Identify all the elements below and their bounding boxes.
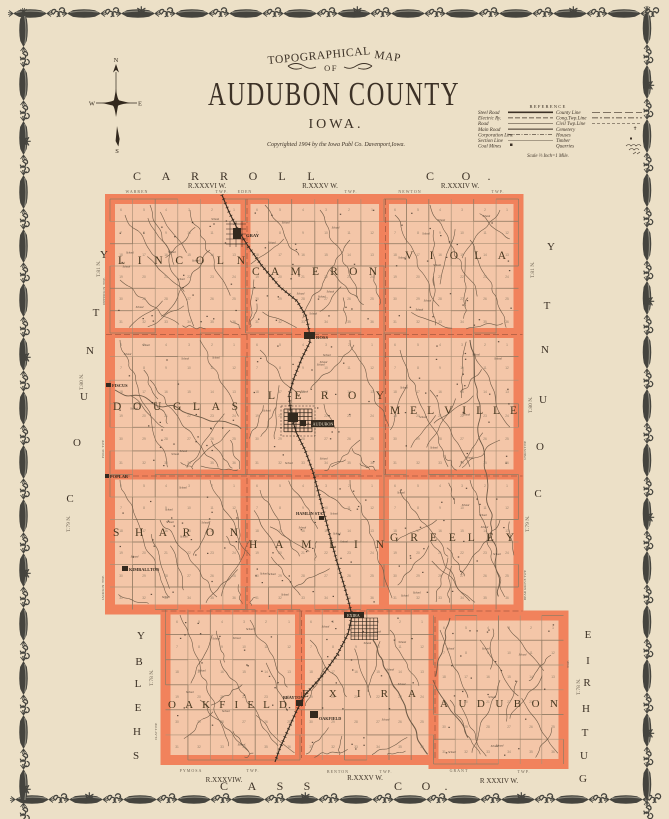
svg-text:31: 31 — [255, 320, 259, 324]
svg-text:15: 15 — [187, 390, 191, 394]
svg-text:OF: OF — [324, 63, 338, 73]
svg-text:6: 6 — [394, 484, 396, 488]
svg-text:School: School — [493, 553, 501, 556]
svg-text:2: 2 — [211, 208, 213, 212]
svg-text:27: 27 — [324, 574, 328, 578]
svg-text:34: 34 — [507, 750, 511, 754]
svg-text:9: 9 — [302, 366, 304, 370]
svg-text:Copyrighted 1904 by the Iowa P: Copyrighted 1904 by the Iowa Publ Co. Da… — [267, 141, 405, 148]
svg-text:6: 6 — [256, 484, 258, 488]
svg-text:School: School — [479, 514, 487, 517]
svg-text:29: 29 — [464, 725, 468, 729]
svg-text:29: 29 — [416, 574, 420, 578]
svg-text:28: 28 — [486, 725, 490, 729]
svg-text:Cemetery: Cemetery — [556, 128, 576, 133]
svg-text:12: 12 — [232, 506, 236, 510]
svg-text:O: O — [536, 441, 544, 453]
svg-text:Civil Twp.Line: Civil Twp.Line — [556, 122, 586, 127]
svg-text:13: 13 — [551, 675, 555, 679]
svg-text:4: 4 — [165, 208, 167, 212]
svg-text:2: 2 — [484, 343, 486, 347]
svg-text:10: 10 — [460, 506, 464, 510]
svg-text:35: 35 — [483, 320, 487, 324]
svg-text:11: 11 — [398, 645, 402, 649]
svg-text:Electric Ry.: Electric Ry. — [477, 117, 501, 122]
svg-text:5: 5 — [279, 208, 281, 212]
svg-text:24: 24 — [505, 275, 509, 279]
svg-text:HAMLIN STA.: HAMLIN STA. — [296, 511, 324, 516]
svg-text:I: I — [586, 655, 590, 667]
svg-text:O: O — [73, 437, 81, 449]
svg-text:20: 20 — [142, 275, 146, 279]
svg-text:School: School — [268, 242, 276, 245]
svg-text:C: C — [133, 169, 141, 183]
svg-text:27: 27 — [324, 437, 328, 441]
svg-text:School: School — [401, 595, 409, 598]
svg-text:Y: Y — [137, 630, 145, 642]
svg-text:14: 14 — [347, 253, 351, 257]
svg-text:21: 21 — [164, 414, 168, 418]
svg-text:32: 32 — [464, 750, 468, 754]
svg-text:PYMOSA: PYMOSA — [180, 768, 203, 773]
svg-text:24: 24 — [232, 275, 236, 279]
svg-text:3: 3 — [325, 208, 327, 212]
svg-text:14: 14 — [398, 670, 402, 674]
svg-text:35: 35 — [483, 596, 487, 600]
svg-text:27: 27 — [376, 720, 380, 724]
svg-text:Quarries: Quarries — [556, 145, 574, 150]
svg-text:1: 1 — [371, 208, 373, 212]
svg-text:25: 25 — [505, 297, 509, 301]
svg-text:9: 9 — [165, 506, 167, 510]
svg-text:T: T — [544, 300, 551, 312]
svg-text:30: 30 — [393, 574, 397, 578]
svg-text:18: 18 — [119, 390, 123, 394]
svg-text:5: 5 — [417, 208, 419, 212]
svg-text:30: 30 — [255, 297, 259, 301]
svg-text:36: 36 — [420, 745, 424, 749]
svg-text:16: 16 — [301, 253, 305, 257]
svg-text:15: 15 — [507, 675, 511, 679]
svg-text:33: 33 — [438, 461, 442, 465]
svg-text:10: 10 — [460, 231, 464, 235]
svg-text:12: 12 — [551, 651, 555, 655]
svg-text:8: 8 — [417, 506, 419, 510]
svg-text:School: School — [285, 462, 293, 465]
svg-text:36: 36 — [232, 596, 236, 600]
svg-text:1: 1 — [506, 484, 508, 488]
svg-text:T.80 N.: T.80 N. — [528, 396, 534, 413]
svg-text:T.78 N.: T.78 N. — [149, 669, 155, 686]
svg-text:34: 34 — [324, 461, 328, 465]
svg-text:35: 35 — [210, 596, 214, 600]
svg-text:School: School — [413, 592, 421, 595]
svg-text:School: School — [430, 446, 438, 449]
svg-text:A: A — [248, 779, 257, 793]
svg-text:26: 26 — [483, 574, 487, 578]
svg-text:C: C — [426, 169, 434, 183]
svg-text:9: 9 — [302, 231, 304, 235]
svg-text:23: 23 — [483, 551, 487, 555]
svg-text:6: 6 — [394, 343, 396, 347]
svg-text:School: School — [416, 308, 424, 311]
svg-text:22: 22 — [324, 551, 328, 555]
svg-text:School: School — [330, 513, 338, 516]
svg-text:16: 16 — [301, 390, 305, 394]
svg-text:36: 36 — [232, 320, 236, 324]
svg-text:10: 10 — [187, 366, 191, 370]
svg-text:11: 11 — [483, 231, 487, 235]
svg-text:30: 30 — [119, 437, 123, 441]
svg-text:32: 32 — [142, 596, 146, 600]
svg-text:32: 32 — [142, 320, 146, 324]
svg-text:School: School — [260, 573, 268, 576]
svg-text:3: 3 — [325, 343, 327, 347]
svg-text:1: 1 — [371, 484, 373, 488]
svg-text:School: School — [483, 215, 491, 218]
svg-text:29: 29 — [197, 720, 201, 724]
svg-text:E X I R A: E X I R A — [302, 688, 416, 700]
svg-text:32: 32 — [197, 745, 201, 749]
svg-text:U: U — [580, 750, 588, 762]
svg-text:26: 26 — [483, 437, 487, 441]
svg-text:32: 32 — [331, 745, 335, 749]
svg-text:6: 6 — [256, 208, 258, 212]
svg-text:25: 25 — [551, 725, 555, 729]
svg-text:34: 34 — [324, 596, 328, 600]
svg-text:13: 13 — [370, 253, 374, 257]
svg-text:26: 26 — [483, 297, 487, 301]
svg-text:4: 4 — [439, 208, 441, 212]
svg-text:32: 32 — [416, 320, 420, 324]
svg-text:JEFFERSON TWP.: JEFFERSON TWP. — [102, 277, 106, 305]
svg-text:21: 21 — [438, 551, 442, 555]
svg-text:1: 1 — [552, 626, 554, 630]
svg-text:O: O — [249, 169, 258, 183]
svg-text:28: 28 — [164, 297, 168, 301]
svg-text:34: 34 — [187, 461, 191, 465]
svg-text:School: School — [124, 353, 132, 356]
svg-text:School: School — [448, 751, 456, 754]
svg-text:20: 20 — [278, 414, 282, 418]
svg-text:6: 6 — [120, 208, 122, 212]
svg-text:7: 7 — [310, 645, 312, 649]
svg-text:14: 14 — [483, 253, 487, 257]
svg-text:5: 5 — [417, 343, 419, 347]
svg-text:18: 18 — [393, 253, 397, 257]
svg-text:1: 1 — [233, 208, 235, 212]
svg-text:School: School — [438, 219, 446, 222]
svg-text:32: 32 — [278, 461, 282, 465]
svg-text:18: 18 — [255, 390, 259, 394]
svg-text:8: 8 — [143, 366, 145, 370]
svg-text:36: 36 — [287, 745, 291, 749]
svg-text:10: 10 — [187, 231, 191, 235]
svg-text:36: 36 — [505, 461, 509, 465]
svg-text:4: 4 — [439, 343, 441, 347]
svg-text:22: 22 — [187, 414, 191, 418]
svg-text:8: 8 — [279, 231, 281, 235]
svg-text:EDEN: EDEN — [238, 189, 253, 194]
svg-text:FISCUS: FISCUS — [112, 383, 128, 388]
svg-text:12: 12 — [505, 366, 509, 370]
svg-text:10: 10 — [507, 651, 511, 655]
svg-text:School: School — [282, 221, 290, 224]
svg-text:School: School — [496, 745, 504, 748]
svg-text:12: 12 — [505, 231, 509, 235]
svg-text:21: 21 — [164, 551, 168, 555]
svg-text:27: 27 — [507, 725, 511, 729]
svg-text:23: 23 — [483, 275, 487, 279]
svg-text:8: 8 — [465, 651, 467, 655]
svg-text:26: 26 — [210, 574, 214, 578]
svg-text:18: 18 — [393, 390, 397, 394]
svg-text:27: 27 — [242, 720, 246, 724]
svg-text:School: School — [364, 642, 372, 645]
svg-text:19: 19 — [309, 695, 313, 699]
svg-text:POLK TWP.: POLK TWP. — [101, 440, 105, 458]
svg-text:R: R — [583, 677, 591, 689]
svg-text:33: 33 — [164, 320, 168, 324]
svg-text:School: School — [323, 354, 331, 357]
svg-text:29: 29 — [278, 437, 282, 441]
svg-text:School: School — [519, 654, 527, 657]
svg-text:13: 13 — [370, 390, 374, 394]
svg-text:30: 30 — [255, 574, 259, 578]
svg-text:25: 25 — [505, 437, 509, 441]
svg-text:T.80 N.: T.80 N. — [79, 373, 85, 390]
svg-text:32: 32 — [142, 461, 146, 465]
svg-text:8: 8 — [332, 645, 334, 649]
svg-text:7: 7 — [176, 645, 178, 649]
svg-text:23: 23 — [210, 551, 214, 555]
svg-text:Y: Y — [547, 241, 555, 253]
svg-text:17: 17 — [278, 253, 282, 257]
svg-text:TWP.: TWP. — [492, 189, 505, 194]
svg-text:21: 21 — [164, 275, 168, 279]
svg-text:34: 34 — [324, 320, 328, 324]
svg-text:1: 1 — [421, 620, 423, 624]
svg-text:11: 11 — [347, 231, 351, 235]
svg-text:5: 5 — [198, 620, 200, 624]
svg-text:T.79 N.: T.79 N. — [525, 515, 531, 532]
svg-text:13: 13 — [232, 253, 236, 257]
svg-text:School: School — [332, 227, 340, 230]
svg-text:9: 9 — [165, 231, 167, 235]
svg-text:21: 21 — [301, 551, 305, 555]
svg-text:13: 13 — [505, 390, 509, 394]
svg-text:H: H — [133, 726, 141, 738]
svg-text:IOWA.: IOWA. — [308, 117, 363, 132]
svg-text:9: 9 — [439, 506, 441, 510]
svg-text:11: 11 — [264, 645, 268, 649]
svg-text:C: C — [394, 779, 402, 793]
svg-text:35: 35 — [483, 461, 487, 465]
svg-text:29: 29 — [416, 437, 420, 441]
svg-text:C: C — [66, 493, 73, 505]
svg-text:7: 7 — [256, 366, 258, 370]
svg-text:12: 12 — [370, 366, 374, 370]
svg-text:13: 13 — [287, 670, 291, 674]
svg-text:30: 30 — [119, 574, 123, 578]
svg-text:4: 4 — [439, 484, 441, 488]
svg-text:36: 36 — [370, 596, 374, 600]
svg-text:28: 28 — [438, 574, 442, 578]
svg-text:24: 24 — [232, 551, 236, 555]
svg-text:School: School — [202, 522, 210, 525]
svg-text:20: 20 — [278, 551, 282, 555]
svg-text:31: 31 — [119, 320, 123, 324]
svg-text:School: School — [180, 450, 188, 453]
svg-text:4: 4 — [221, 620, 223, 624]
svg-text:20: 20 — [416, 551, 420, 555]
svg-text:E: E — [138, 101, 142, 108]
svg-text:25: 25 — [232, 297, 236, 301]
svg-text:3: 3 — [188, 343, 190, 347]
svg-text:School: School — [268, 573, 276, 576]
svg-text:16: 16 — [486, 675, 490, 679]
svg-text:16: 16 — [164, 390, 168, 394]
svg-text:32: 32 — [416, 461, 420, 465]
svg-text:31: 31 — [119, 596, 123, 600]
svg-text:E: E — [585, 629, 592, 641]
svg-text:School: School — [398, 683, 406, 686]
svg-text:33: 33 — [164, 461, 168, 465]
svg-text:23: 23 — [210, 275, 214, 279]
svg-text:Corporation Line: Corporation Line — [478, 133, 514, 138]
svg-text:4: 4 — [487, 626, 489, 630]
svg-text:TWP.: TWP. — [518, 769, 531, 774]
svg-text:T.81 N.: T.81 N. — [530, 261, 536, 278]
svg-text:E: E — [135, 702, 142, 714]
svg-text:27: 27 — [324, 297, 328, 301]
svg-text:GRANT: GRANT — [450, 768, 469, 773]
svg-text:36: 36 — [232, 461, 236, 465]
svg-text:7: 7 — [394, 231, 396, 235]
svg-text:Main Road: Main Road — [477, 128, 501, 133]
svg-text:EXIRA: EXIRA — [347, 613, 360, 618]
svg-text:School: School — [246, 628, 254, 631]
svg-text:35: 35 — [398, 745, 402, 749]
svg-text:TWP.: TWP. — [380, 769, 393, 774]
svg-text:7: 7 — [394, 366, 396, 370]
svg-text:8: 8 — [417, 366, 419, 370]
svg-text:Steel Road: Steel Road — [478, 111, 500, 116]
svg-text:5: 5 — [332, 620, 334, 624]
svg-text:28: 28 — [301, 297, 305, 301]
svg-text:2: 2 — [484, 208, 486, 212]
svg-text:5: 5 — [143, 343, 145, 347]
svg-text:POPLAR: POPLAR — [110, 474, 129, 479]
svg-text:12: 12 — [232, 366, 236, 370]
svg-text:10: 10 — [187, 506, 191, 510]
svg-text:2: 2 — [348, 343, 350, 347]
svg-text:1: 1 — [506, 208, 508, 212]
svg-text:BEAR GROVE TWP.: BEAR GROVE TWP. — [523, 570, 527, 600]
svg-text:25: 25 — [370, 574, 374, 578]
svg-text:26: 26 — [347, 297, 351, 301]
svg-text:14: 14 — [347, 529, 351, 533]
svg-text:School: School — [472, 353, 480, 356]
svg-text:B: B — [135, 656, 142, 668]
svg-text:31: 31 — [393, 461, 397, 465]
svg-text:T: T — [582, 727, 589, 739]
svg-text:31: 31 — [393, 320, 397, 324]
svg-text:22: 22 — [324, 414, 328, 418]
svg-text:C: C — [534, 488, 541, 500]
svg-text:R XXXIV W.: R XXXIV W. — [480, 777, 518, 785]
svg-text:3: 3 — [508, 626, 510, 630]
svg-text:School: School — [186, 691, 194, 694]
svg-text:O: O — [462, 169, 471, 183]
svg-text:School: School — [422, 233, 430, 236]
svg-text:22: 22 — [187, 551, 191, 555]
svg-text:TWP.: TWP. — [566, 660, 570, 668]
svg-text:3: 3 — [461, 343, 463, 347]
svg-text:N: N — [86, 345, 94, 357]
svg-text:School: School — [397, 491, 405, 494]
svg-text:S: S — [277, 779, 284, 793]
svg-text:35: 35 — [347, 320, 351, 324]
svg-text:23: 23 — [210, 414, 214, 418]
svg-text:School: School — [136, 306, 144, 309]
svg-text:34: 34 — [376, 745, 380, 749]
svg-text:A: A — [162, 169, 171, 183]
svg-text:School: School — [181, 358, 189, 361]
svg-text:11: 11 — [529, 651, 533, 655]
svg-text:34: 34 — [242, 745, 246, 749]
svg-text:22: 22 — [460, 275, 464, 279]
svg-text:12: 12 — [287, 645, 291, 649]
svg-text:31: 31 — [255, 596, 259, 600]
svg-text:17: 17 — [416, 390, 420, 394]
svg-text:School: School — [309, 313, 317, 316]
svg-text:19: 19 — [119, 275, 123, 279]
svg-text:8: 8 — [143, 231, 145, 235]
svg-text:21: 21 — [301, 414, 305, 418]
svg-text:2: 2 — [211, 484, 213, 488]
svg-text:School: School — [233, 637, 241, 640]
svg-text:18: 18 — [119, 529, 123, 533]
svg-text:9: 9 — [165, 366, 167, 370]
svg-text:TWP.: TWP. — [345, 189, 358, 194]
svg-text:11: 11 — [210, 231, 214, 235]
svg-text:JACKSON TWP.: JACKSON TWP. — [101, 575, 105, 600]
svg-text:27: 27 — [187, 574, 191, 578]
svg-text:U: U — [80, 391, 88, 403]
svg-text:8: 8 — [198, 645, 200, 649]
svg-text:Cong.Twp.Line: Cong.Twp.Line — [556, 117, 587, 122]
svg-text:G: G — [579, 773, 587, 785]
svg-text:7: 7 — [120, 506, 122, 510]
svg-text:Scale ⅔ Inch=1 Mile.: Scale ⅔ Inch=1 Mile. — [527, 154, 569, 159]
svg-text:11: 11 — [483, 366, 487, 370]
svg-text:18: 18 — [309, 670, 313, 674]
svg-text:4: 4 — [355, 620, 357, 624]
svg-text:9: 9 — [439, 231, 441, 235]
svg-text:16: 16 — [354, 670, 358, 674]
svg-text:School: School — [466, 457, 474, 460]
svg-text:22: 22 — [187, 275, 191, 279]
svg-text:3: 3 — [188, 208, 190, 212]
svg-text:4: 4 — [302, 484, 304, 488]
svg-text:School: School — [447, 648, 455, 651]
svg-text:15: 15 — [460, 390, 464, 394]
svg-text:33: 33 — [301, 461, 305, 465]
svg-text:WARREN: WARREN — [126, 189, 149, 194]
svg-text:30: 30 — [393, 297, 397, 301]
svg-text:County Line: County Line — [556, 111, 581, 116]
